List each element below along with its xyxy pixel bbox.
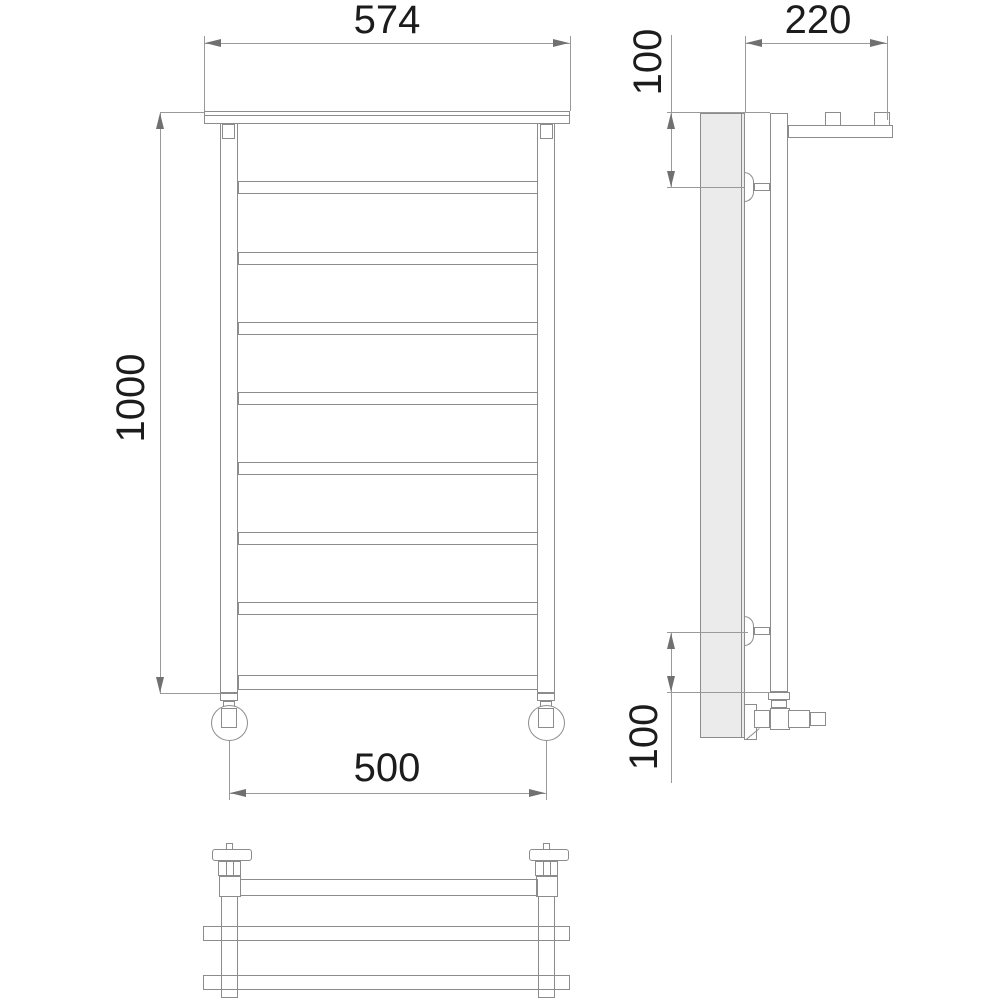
- frame-crossbar-top-view: [240, 879, 538, 896]
- extension-line: [667, 112, 770, 113]
- dimension-value: 574: [334, 0, 440, 40]
- arrowhead: [529, 789, 545, 797]
- arrowhead: [230, 789, 246, 797]
- dimension-value: 100: [624, 677, 664, 797]
- arrowhead: [205, 39, 221, 47]
- rung: [238, 532, 538, 545]
- extension-line: [570, 36, 571, 111]
- wall-bracket-bottom: [744, 616, 754, 646]
- valve-stem-line: [543, 861, 544, 876]
- shelf-bracket-right: [540, 124, 553, 139]
- rung: [238, 392, 538, 405]
- arrowhead: [553, 39, 569, 47]
- extension-line: [667, 692, 770, 693]
- dimension-line: [229, 793, 546, 794]
- valve-stem-line: [550, 861, 551, 876]
- technical-drawing-canvas: 574 1000 500: [0, 0, 1000, 1000]
- arrowhead: [156, 113, 164, 129]
- side-valve-nut: [768, 692, 790, 700]
- extension-line: [204, 36, 205, 111]
- extension-line: [667, 632, 748, 633]
- valve-block-right: [536, 876, 558, 897]
- wall-bracket-bottom-stem: [754, 627, 770, 635]
- arrowhead: [667, 113, 675, 129]
- valve-square-left: [221, 708, 237, 728]
- shelf-front: [204, 111, 570, 124]
- side-valve-cap: [810, 712, 826, 726]
- arrowhead: [667, 676, 675, 692]
- dimension-line: [745, 43, 887, 44]
- side-valve-flange: [754, 710, 770, 728]
- arrowhead: [667, 633, 675, 649]
- rung: [238, 322, 538, 335]
- side-valve-ring: [771, 700, 787, 708]
- wall-section: [700, 113, 745, 738]
- extension-line: [160, 112, 204, 113]
- shelf-rail-1: [203, 926, 570, 941]
- side-valve-outlet: [788, 710, 810, 728]
- rung: [238, 181, 538, 194]
- dimension-line: [671, 35, 672, 187]
- bottom-tube: [238, 675, 538, 690]
- arrowhead: [156, 677, 164, 693]
- wall-bracket-top-stem: [754, 183, 770, 191]
- valve-handle-right: [529, 849, 569, 861]
- dimension-line: [204, 43, 570, 44]
- dimension-line: [671, 632, 672, 783]
- valve-handle-left: [212, 849, 252, 861]
- valve-nut-top-left: [218, 861, 241, 876]
- rung: [238, 602, 538, 615]
- rung: [238, 252, 538, 265]
- dimension-line: [160, 112, 161, 693]
- shelf-bracket-left: [222, 124, 235, 139]
- extension-line: [887, 36, 888, 120]
- valve-nut-top-right: [535, 861, 558, 876]
- extension-line: [667, 187, 745, 188]
- dimension-value: 1000: [111, 338, 151, 458]
- valve-nut-left: [220, 693, 238, 701]
- arrowhead: [667, 171, 675, 187]
- dimension-value: 100: [628, 2, 668, 122]
- wall-bracket-top: [744, 172, 754, 202]
- tube-left: [220, 123, 238, 693]
- tube-side: [770, 113, 788, 692]
- extension-line: [745, 36, 746, 113]
- valve-square-right: [538, 708, 554, 728]
- valve-block-left: [219, 876, 241, 897]
- extension-line: [160, 693, 220, 694]
- shelf-rail-end-1: [825, 112, 841, 126]
- valve-nut-right: [537, 693, 555, 701]
- wall-inner-line: [741, 113, 742, 738]
- valve-stem-line: [233, 861, 234, 876]
- shelf-rail-2: [203, 975, 570, 990]
- extension-line: [546, 741, 547, 800]
- shelf-front-inner-line: [205, 115, 569, 116]
- tube-right: [537, 123, 555, 693]
- dimension-value: 220: [765, 0, 871, 40]
- valve-stem-line: [226, 861, 227, 876]
- arrowhead: [746, 39, 762, 47]
- arrowhead: [870, 39, 886, 47]
- shelf-side: [788, 125, 893, 138]
- side-valve-body: [770, 708, 790, 730]
- dimension-value: 500: [334, 748, 440, 788]
- rung: [238, 462, 538, 475]
